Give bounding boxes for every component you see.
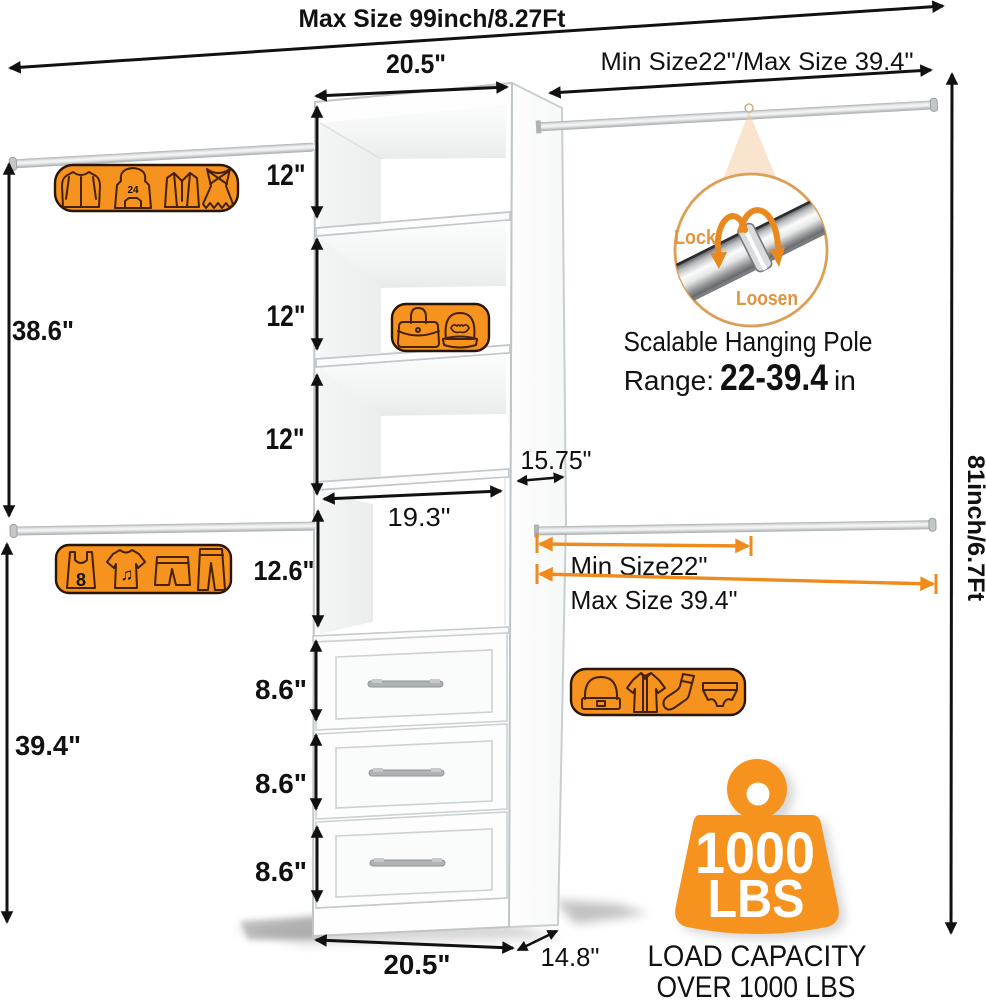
svg-text:Scalable Hanging Pole: Scalable Hanging Pole xyxy=(624,326,873,357)
svg-text:14.8": 14.8" xyxy=(541,942,600,972)
svg-text:20.5": 20.5" xyxy=(386,49,446,79)
svg-text:38.6": 38.6" xyxy=(12,315,74,346)
svg-text:Max Size 99inch/8.27Ft: Max Size 99inch/8.27Ft xyxy=(299,5,567,33)
svg-text:39.4": 39.4" xyxy=(15,730,81,761)
svg-text:Range:: Range: xyxy=(624,365,714,396)
svg-text:Max Size 39.4": Max Size 39.4" xyxy=(571,585,738,615)
svg-text:81inch/6.7Ft: 81inch/6.7Ft xyxy=(962,455,986,601)
svg-text:20.5": 20.5" xyxy=(384,949,451,980)
svg-text:24: 24 xyxy=(127,185,139,196)
svg-text:LBS: LBS xyxy=(708,869,805,929)
svg-text:♫: ♫ xyxy=(121,565,134,584)
svg-text:12": 12" xyxy=(267,159,306,192)
svg-text:Loosen: Loosen xyxy=(736,288,798,310)
svg-text:Lock: Lock xyxy=(674,227,717,249)
svg-text:8.6": 8.6" xyxy=(255,856,307,887)
svg-text:8: 8 xyxy=(76,570,86,590)
svg-text:LOAD CAPACITY: LOAD CAPACITY xyxy=(648,940,867,973)
svg-text:22-39.4: 22-39.4 xyxy=(720,357,828,398)
svg-text:19.3": 19.3" xyxy=(388,502,451,532)
svg-text:8.6": 8.6" xyxy=(255,674,307,705)
svg-text:15.75": 15.75" xyxy=(521,445,592,475)
svg-text:in: in xyxy=(834,365,856,396)
svg-text:12": 12" xyxy=(267,300,306,333)
svg-text:Min Size22"/Max Size 39.4": Min Size22"/Max Size 39.4" xyxy=(601,48,914,76)
svg-text:OVER 1000 LBS: OVER 1000 LBS xyxy=(657,971,856,1000)
svg-text:12.6": 12.6" xyxy=(254,555,315,586)
svg-text:8.6": 8.6" xyxy=(255,768,307,799)
svg-text:12": 12" xyxy=(266,423,305,456)
